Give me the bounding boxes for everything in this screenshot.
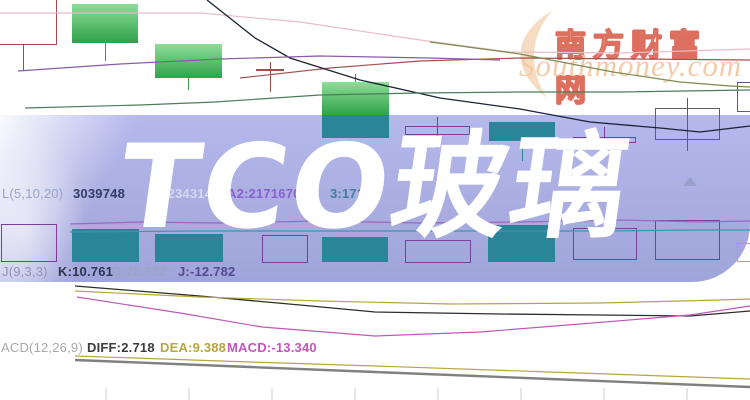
kdj-d-value: D:22.532 [112,264,167,279]
kdj-params-label: J(9,3,3) [2,264,48,279]
kdj-j-value: J:-12.782 [178,264,235,279]
banner-title: TCO玻璃 [0,127,750,249]
macd-params-label: ACD(12,26,9) [1,340,83,355]
macd-diff-value: DIFF:2.718 [87,340,155,355]
kdj-k-value: K:10.761 [58,264,113,279]
macd-macd-value: MACD:-13.340 [227,340,317,355]
macd-dea-value: DEA:9.388 [160,340,226,355]
stock-chart-screenshot: 南方财富网 Southmoney.com L(5,10,20) 3039748 … [0,0,750,400]
